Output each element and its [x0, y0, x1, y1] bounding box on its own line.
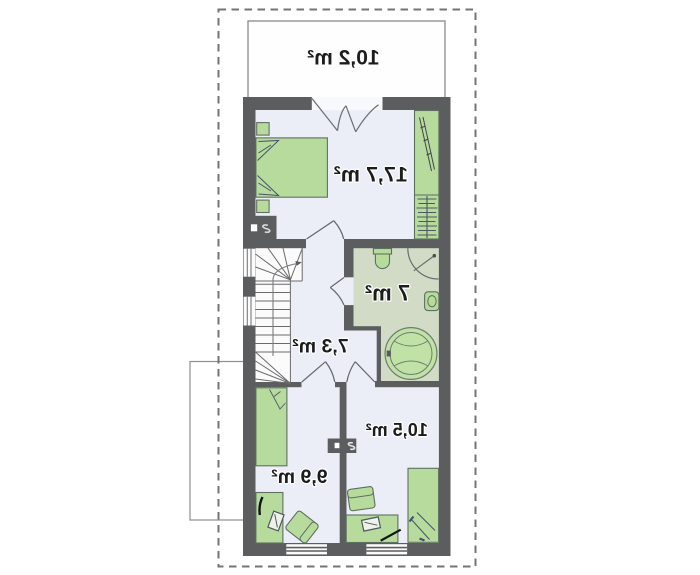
svg-text:7 m²: 7 m²	[365, 281, 410, 306]
svg-text:10,5 m²: 10,5 m²	[366, 420, 428, 440]
svg-text:7,3 m²: 7,3 m²	[292, 336, 349, 358]
svg-text:17,7 m²: 17,7 m²	[334, 163, 408, 187]
svg-text:10,2 m²: 10,2 m²	[307, 47, 379, 70]
svg-text:9,9 m²: 9,9 m²	[271, 466, 328, 488]
